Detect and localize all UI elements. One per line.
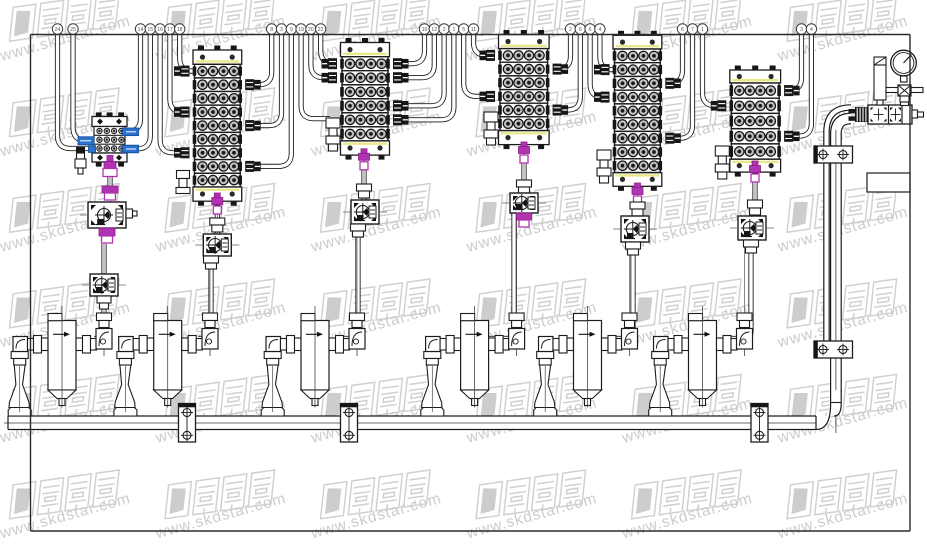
svg-text:15: 15: [147, 27, 153, 33]
svg-text:4: 4: [810, 27, 813, 33]
svg-text:18: 18: [177, 27, 183, 33]
svg-text:6: 6: [681, 27, 684, 33]
svg-text:25: 25: [70, 27, 76, 33]
svg-text:2: 2: [443, 27, 446, 33]
svg-text:3: 3: [800, 27, 803, 33]
svg-text:11: 11: [471, 27, 476, 33]
svg-text:1: 1: [701, 27, 704, 33]
svg-text:12: 12: [431, 27, 437, 33]
svg-text:10: 10: [422, 27, 428, 33]
svg-text:16: 16: [157, 27, 163, 33]
svg-text:5: 5: [462, 27, 465, 33]
svg-text:4: 4: [598, 27, 601, 33]
svg-text:24: 24: [55, 27, 61, 33]
svg-text:9: 9: [290, 27, 293, 33]
svg-text:8: 8: [270, 27, 273, 33]
svg-text:19: 19: [298, 27, 304, 33]
svg-text:1: 1: [452, 27, 455, 33]
svg-text:3: 3: [280, 27, 283, 33]
svg-text:22: 22: [318, 27, 324, 33]
svg-text:14: 14: [138, 27, 144, 33]
svg-text:17: 17: [167, 27, 173, 33]
svg-text:2: 2: [569, 27, 572, 33]
svg-text:6: 6: [579, 27, 582, 33]
svg-text:20: 20: [308, 27, 314, 33]
svg-text:7: 7: [691, 27, 694, 33]
svg-text:6: 6: [589, 27, 592, 33]
